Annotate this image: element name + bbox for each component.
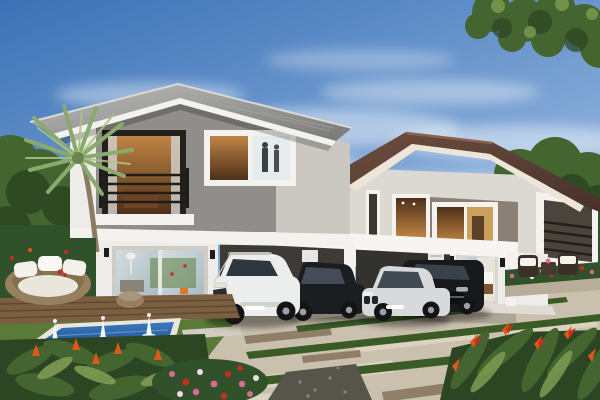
pillow [38,256,62,271]
left-house-corner-window [204,130,296,186]
interior-figure [274,150,279,172]
headlight [456,287,468,292]
architectural-render-photo [0,0,600,400]
meter-box [302,250,318,262]
windshield [226,259,278,276]
kidney-grille [364,296,370,304]
windshield [377,271,424,288]
table-flowers [546,259,551,264]
flower-accent [57,269,62,274]
shade-tree-canopy [465,0,600,68]
interior-cabinet [472,216,484,243]
roof-rails [230,252,270,255]
license-plate [245,306,265,310]
balcony-ledge [94,214,194,225]
headlight [363,292,373,296]
kidney-grille [372,296,378,304]
wall-sconce [210,250,215,259]
patio-table [541,262,556,275]
wall-sconce [104,248,109,257]
windshield [301,267,345,284]
left-house-balcony [94,130,194,225]
interior-figure [262,148,268,172]
interior-lamp [126,253,136,260]
headlight [214,283,227,288]
scene-canvas [0,0,600,400]
seat-cushion [18,275,78,297]
wicker-daybed [5,256,91,305]
license-plate [386,305,404,309]
orange-cushion [180,288,188,294]
wall-sconce [500,258,505,267]
interior-sofa [120,280,144,292]
